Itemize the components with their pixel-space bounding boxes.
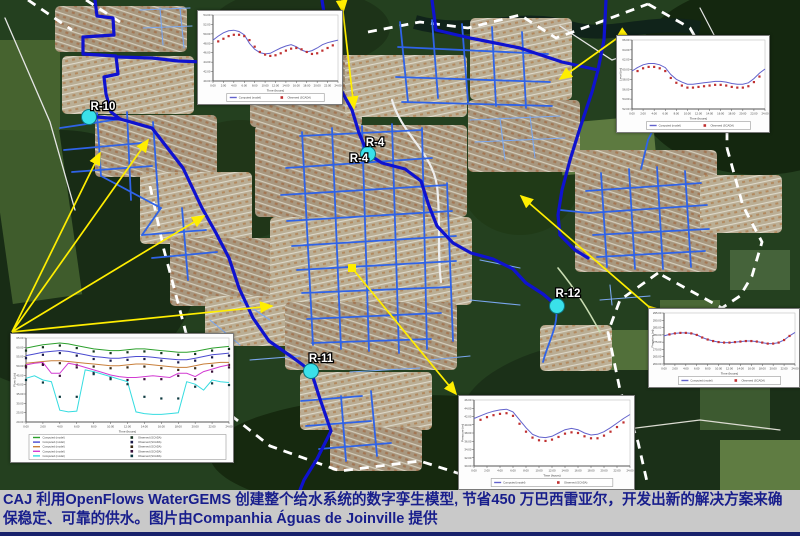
y-tick-label: 54.00 bbox=[622, 97, 629, 101]
series-point bbox=[222, 38, 224, 40]
series-point bbox=[736, 87, 738, 89]
series-point bbox=[259, 51, 261, 53]
legend-label: Observed (SCADA) bbox=[742, 379, 766, 383]
legend-label: Computed (model) bbox=[43, 449, 65, 453]
series-point bbox=[269, 55, 271, 57]
series-point bbox=[505, 412, 507, 414]
series-point bbox=[143, 350, 145, 352]
series-point bbox=[76, 396, 78, 398]
series-point bbox=[177, 361, 179, 363]
series-point bbox=[194, 367, 196, 369]
y-tick-label: 20.00 bbox=[16, 420, 23, 424]
y-tick-label: 45.00 bbox=[16, 373, 23, 377]
series-point bbox=[42, 346, 44, 348]
series-point bbox=[616, 426, 618, 428]
chart-inset-bottom-middle: 46.0044.0042.0040.0038.0036.0034.0032.00… bbox=[459, 396, 634, 489]
y-tick-label: 54.00 bbox=[203, 13, 210, 17]
y-tick-label: 38.00 bbox=[464, 431, 471, 435]
series-point bbox=[295, 47, 297, 49]
figure: R-10R-4R-4R-11R-12 54.0052.0050.0048.004… bbox=[0, 0, 800, 536]
series-point bbox=[707, 338, 709, 340]
series-point bbox=[653, 66, 655, 68]
series-point bbox=[675, 82, 677, 84]
x-tick-label: 2:00 bbox=[640, 111, 646, 115]
series-point bbox=[59, 344, 61, 346]
x-tick-label: 16:00 bbox=[748, 366, 755, 370]
series-point bbox=[42, 364, 44, 366]
node-label-r-4: R-4 bbox=[350, 153, 369, 165]
y-tick-label: 64.00 bbox=[622, 48, 629, 52]
series-point bbox=[570, 431, 572, 433]
y-tick-label: 60.00 bbox=[16, 345, 23, 349]
series-point bbox=[538, 439, 540, 441]
series-point bbox=[636, 70, 638, 72]
series-point bbox=[725, 84, 727, 86]
series-point bbox=[126, 366, 128, 368]
y-tick-label: 260.00 bbox=[653, 362, 662, 366]
series-point bbox=[479, 419, 481, 421]
legend-label: Computed (model) bbox=[43, 436, 65, 440]
y-tick-label: 52.00 bbox=[622, 107, 629, 111]
series-point bbox=[126, 379, 128, 381]
legend-label: Observed (SCADA) bbox=[711, 124, 735, 128]
legend-label: Observed (SCADA) bbox=[288, 96, 312, 100]
x-tick-label: 0:00 bbox=[471, 468, 477, 472]
inset-chart-bottom-middle: 46.0044.0042.0040.0038.0036.0034.0032.00… bbox=[458, 395, 635, 490]
x-tick-label: 6:00 bbox=[663, 111, 669, 115]
series-point bbox=[211, 371, 213, 373]
series-point bbox=[177, 397, 179, 399]
x-tick-label: 10:00 bbox=[107, 424, 114, 428]
inset-chart-top-middle: 54.0052.0050.0048.0046.0044.0042.0040.00… bbox=[197, 10, 343, 105]
y-tick-label: 42.00 bbox=[464, 415, 471, 419]
series-point bbox=[248, 39, 250, 41]
series-point bbox=[143, 358, 145, 360]
x-tick-label: 4:00 bbox=[683, 366, 689, 370]
x-tick-label: 22:00 bbox=[750, 111, 757, 115]
x-tick-label: 24:00 bbox=[627, 468, 634, 472]
series-point bbox=[788, 335, 790, 337]
x-tick-label: 10:00 bbox=[715, 366, 722, 370]
series-point bbox=[783, 339, 785, 341]
x-tick-label: 20:00 bbox=[739, 111, 746, 115]
series-point bbox=[228, 366, 230, 368]
node-label-r-10: R-10 bbox=[91, 101, 116, 113]
series-point bbox=[681, 84, 683, 86]
x-tick-label: 8:00 bbox=[705, 366, 711, 370]
series-point bbox=[217, 40, 219, 42]
series-point bbox=[321, 50, 323, 52]
series-point bbox=[583, 435, 585, 437]
y-axis-title: Level (m) bbox=[619, 68, 623, 81]
series-point bbox=[758, 75, 760, 77]
x-tick-label: 16:00 bbox=[717, 111, 724, 115]
x-tick-label: 6:00 bbox=[242, 83, 248, 87]
x-tick-label: 20:00 bbox=[314, 83, 321, 87]
x-tick-label: 14:00 bbox=[282, 83, 289, 87]
x-tick-label: 24:00 bbox=[792, 366, 799, 370]
node-marker-r-12 bbox=[550, 299, 565, 314]
x-tick-label: 0:00 bbox=[210, 83, 216, 87]
node-label-r-4: R-4 bbox=[366, 137, 385, 149]
callout-anchor-square bbox=[348, 264, 356, 272]
series-point bbox=[42, 381, 44, 383]
series-point bbox=[274, 54, 276, 56]
series-point bbox=[143, 378, 145, 380]
x-tick-label: 8:00 bbox=[91, 424, 97, 428]
x-tick-label: 12:00 bbox=[695, 111, 702, 115]
series-point bbox=[59, 375, 61, 377]
series-point bbox=[143, 396, 145, 398]
x-tick-label: 18:00 bbox=[759, 366, 766, 370]
legend-label: Computed (model) bbox=[239, 96, 261, 100]
caption-text: CAJ 利用OpenFlows WaterGEMS 创建整个给水系统的数字孪生模… bbox=[0, 490, 800, 529]
chart-inset-top-middle: 54.0052.0050.0048.0046.0044.0042.0040.00… bbox=[198, 11, 342, 104]
series-point bbox=[42, 354, 44, 356]
x-tick-label: 2:00 bbox=[672, 366, 678, 370]
y-tick-label: 34.00 bbox=[464, 448, 471, 452]
y-tick-label: 44.00 bbox=[464, 406, 471, 410]
series-point bbox=[525, 431, 527, 433]
series-point bbox=[160, 367, 162, 369]
x-tick-label: 20:00 bbox=[601, 468, 608, 472]
y-tick-label: 50.00 bbox=[16, 364, 23, 368]
series-point bbox=[177, 375, 179, 377]
series-point bbox=[742, 87, 744, 89]
series-point bbox=[492, 414, 494, 416]
x-tick-label: 22:00 bbox=[614, 468, 621, 472]
series-point bbox=[228, 355, 230, 357]
plot-area bbox=[474, 400, 630, 466]
x-tick-label: 14:00 bbox=[706, 111, 713, 115]
inset-chart-right-middle: 295.00290.00285.00280.00275.00270.00265.… bbox=[648, 308, 800, 388]
node-label-r-11: R-11 bbox=[309, 353, 334, 365]
x-tick-label: 16:00 bbox=[293, 83, 300, 87]
x-tick-label: 14:00 bbox=[737, 366, 744, 370]
series-point bbox=[703, 85, 705, 87]
y-tick-label: 50.00 bbox=[203, 32, 210, 36]
series-point bbox=[701, 336, 703, 338]
series-point bbox=[238, 34, 240, 36]
inset-chart-top-right: 66.0064.0062.0060.0058.0056.0054.0052.00… bbox=[616, 35, 770, 133]
series-point bbox=[160, 360, 162, 362]
legend-label: Computed (model) bbox=[690, 379, 712, 383]
y-tick-label: 32.00 bbox=[464, 456, 471, 460]
x-tick-label: 4:00 bbox=[231, 83, 237, 87]
y-tick-label: 44.00 bbox=[203, 60, 210, 64]
series-point bbox=[177, 369, 179, 371]
x-tick-label: 14:00 bbox=[141, 424, 148, 428]
series-point bbox=[778, 341, 780, 343]
series-point bbox=[697, 86, 699, 88]
y-tick-label: 265.00 bbox=[653, 355, 662, 359]
inset-chart-bottom-left: 65.0060.0055.0050.0045.0040.0035.0030.00… bbox=[10, 333, 234, 463]
series-point bbox=[720, 84, 722, 86]
y-tick-label: 60.00 bbox=[622, 68, 629, 72]
series-point bbox=[664, 70, 666, 72]
y-tick-label: 65.00 bbox=[16, 336, 23, 340]
series-point bbox=[512, 415, 514, 417]
x-tick-label: 24:00 bbox=[762, 111, 769, 115]
series-point bbox=[194, 386, 196, 388]
x-tick-label: 20:00 bbox=[770, 366, 777, 370]
x-tick-label: 2:00 bbox=[484, 468, 490, 472]
x-tick-label: 18:00 bbox=[303, 83, 310, 87]
x-tick-label: 0:00 bbox=[23, 424, 29, 428]
x-tick-label: 12:00 bbox=[124, 424, 131, 428]
series-point bbox=[25, 357, 27, 359]
series-point bbox=[177, 354, 179, 356]
x-tick-label: 8:00 bbox=[252, 83, 258, 87]
series-point bbox=[160, 378, 162, 380]
series-point bbox=[59, 362, 61, 364]
series-point bbox=[160, 352, 162, 354]
y-tick-label: 40.00 bbox=[464, 423, 471, 427]
series-point bbox=[557, 436, 559, 438]
x-tick-label: 24:00 bbox=[335, 83, 342, 87]
x-tick-label: 6:00 bbox=[694, 366, 700, 370]
series-point bbox=[696, 334, 698, 336]
series-point bbox=[76, 366, 78, 368]
series-point bbox=[76, 355, 78, 357]
x-tick-label: 2:00 bbox=[221, 83, 227, 87]
x-tick-label: 10:00 bbox=[684, 111, 691, 115]
y-tick-label: 30.00 bbox=[16, 401, 23, 405]
series-point bbox=[143, 365, 145, 367]
x-tick-label: 4:00 bbox=[57, 424, 63, 428]
y-tick-label: 35.00 bbox=[16, 392, 23, 396]
x-axis-title: Time (hours) bbox=[690, 116, 707, 120]
series-point bbox=[109, 352, 111, 354]
series-point bbox=[211, 350, 213, 352]
series-point bbox=[622, 421, 624, 423]
series-point bbox=[326, 47, 328, 49]
y-tick-label: 52.00 bbox=[203, 22, 210, 26]
y-tick-label: 66.00 bbox=[622, 38, 629, 42]
x-tick-label: 24:00 bbox=[226, 424, 233, 428]
x-axis-title: Time (hours) bbox=[267, 88, 284, 92]
series-point bbox=[596, 437, 598, 439]
chart-inset-bottom-left: 65.0060.0055.0050.0045.0040.0035.0030.00… bbox=[11, 334, 233, 462]
x-axis-title: Time (hours) bbox=[543, 473, 560, 477]
series-point bbox=[93, 358, 95, 360]
series-point bbox=[59, 352, 61, 354]
series-point bbox=[648, 66, 650, 68]
x-tick-label: 8:00 bbox=[523, 468, 529, 472]
y-tick-label: 48.00 bbox=[203, 41, 210, 45]
series-point bbox=[332, 44, 334, 46]
y-axis-title: Pressure (m) bbox=[651, 330, 655, 348]
series-point bbox=[93, 350, 95, 352]
series-point bbox=[76, 347, 78, 349]
legend-label: Observed (SCADA) bbox=[138, 440, 162, 444]
plot-area bbox=[213, 15, 338, 81]
x-tick-label: 12:00 bbox=[272, 83, 279, 87]
series-point bbox=[109, 367, 111, 369]
legend-label: Observed (SCADA) bbox=[138, 449, 162, 453]
series-point bbox=[311, 53, 313, 55]
y-tick-label: 295.00 bbox=[653, 311, 662, 315]
x-tick-label: 20:00 bbox=[192, 424, 199, 428]
series-point bbox=[712, 340, 714, 342]
y-tick-label: 56.00 bbox=[622, 87, 629, 91]
x-tick-label: 2:00 bbox=[40, 424, 46, 428]
series-point bbox=[211, 356, 213, 358]
series-point bbox=[486, 416, 488, 418]
x-tick-label: 16:00 bbox=[158, 424, 165, 428]
series-point bbox=[577, 432, 579, 434]
series-point bbox=[126, 383, 128, 385]
series-point bbox=[731, 86, 733, 88]
y-tick-label: 30.00 bbox=[464, 464, 471, 468]
map-area: R-10R-4R-4R-11R-12 54.0052.0050.0048.004… bbox=[0, 0, 800, 490]
series-point bbox=[25, 379, 27, 381]
y-tick-label: 36.00 bbox=[464, 439, 471, 443]
series-point bbox=[753, 81, 755, 83]
series-point bbox=[93, 373, 95, 375]
series-point bbox=[518, 423, 520, 425]
x-tick-label: 16:00 bbox=[575, 468, 582, 472]
series-point bbox=[280, 52, 282, 54]
series-point bbox=[590, 437, 592, 439]
x-tick-label: 18:00 bbox=[175, 424, 182, 428]
series-point bbox=[668, 333, 670, 335]
series-point bbox=[745, 340, 747, 342]
series-point bbox=[194, 360, 196, 362]
series-point bbox=[243, 35, 245, 37]
y-tick-label: 46.00 bbox=[464, 398, 471, 402]
caption-bar: CAJ 利用OpenFlows WaterGEMS 创建整个给水系统的数字孪生模… bbox=[0, 490, 800, 536]
series-point bbox=[761, 341, 763, 343]
series-point bbox=[564, 433, 566, 435]
x-axis-title: Time (hours) bbox=[721, 371, 738, 375]
series-point bbox=[659, 67, 661, 69]
series-point bbox=[228, 35, 230, 37]
series-point bbox=[254, 46, 256, 48]
y-tick-label: 46.00 bbox=[203, 51, 210, 55]
series-point bbox=[211, 365, 213, 367]
series-point bbox=[728, 341, 730, 343]
plot-area bbox=[632, 40, 765, 109]
x-tick-label: 22:00 bbox=[324, 83, 331, 87]
legend-label: Observed (SCADA) bbox=[138, 436, 162, 440]
x-axis-title: Time (hours) bbox=[119, 429, 136, 433]
y-tick-label: 25.00 bbox=[16, 411, 23, 415]
chart-inset-right-middle: 295.00290.00285.00280.00275.00270.00265.… bbox=[649, 309, 799, 387]
legend-label: Computed (model) bbox=[43, 445, 65, 449]
series-point bbox=[59, 396, 61, 398]
series-point bbox=[25, 350, 27, 352]
series-point bbox=[285, 50, 287, 52]
series-point bbox=[300, 48, 302, 50]
series-point bbox=[194, 353, 196, 355]
series-point bbox=[685, 332, 687, 334]
series-point bbox=[228, 348, 230, 350]
series-point bbox=[306, 51, 308, 53]
x-tick-label: 8:00 bbox=[674, 111, 680, 115]
series-point bbox=[126, 359, 128, 361]
series-point bbox=[739, 340, 741, 342]
series-point bbox=[717, 341, 719, 343]
legend-label: Computed (model) bbox=[43, 454, 65, 458]
series-point bbox=[316, 52, 318, 54]
series-point bbox=[772, 343, 774, 345]
legend-label: Observed (SCADA) bbox=[138, 445, 162, 449]
x-tick-label: 12:00 bbox=[549, 468, 556, 472]
x-tick-label: 4:00 bbox=[497, 468, 503, 472]
series-point bbox=[723, 341, 725, 343]
series-point bbox=[747, 85, 749, 87]
series-point bbox=[692, 87, 694, 89]
x-tick-label: 6:00 bbox=[74, 424, 80, 428]
y-tick-label: 55.00 bbox=[16, 355, 23, 359]
series-point bbox=[714, 84, 716, 86]
series-point bbox=[686, 87, 688, 89]
y-tick-label: 285.00 bbox=[653, 326, 662, 330]
x-tick-label: 10:00 bbox=[262, 83, 269, 87]
x-tick-label: 18:00 bbox=[728, 111, 735, 115]
series-point bbox=[544, 440, 546, 442]
y-tick-label: 62.00 bbox=[622, 58, 629, 62]
series-point bbox=[233, 34, 235, 36]
series-point bbox=[228, 384, 230, 386]
legend-label: Computed (model) bbox=[659, 124, 681, 128]
x-tick-label: 14:00 bbox=[562, 468, 569, 472]
series-point bbox=[756, 340, 758, 342]
series-point bbox=[290, 48, 292, 50]
series-point bbox=[25, 366, 27, 368]
series-point bbox=[109, 360, 111, 362]
series-point bbox=[264, 54, 266, 56]
x-tick-label: 22:00 bbox=[209, 424, 216, 428]
y-tick-label: 40.00 bbox=[203, 79, 210, 83]
x-tick-label: 12:00 bbox=[726, 366, 733, 370]
y-tick-label: 58.00 bbox=[622, 77, 629, 81]
series-point bbox=[674, 332, 676, 334]
x-tick-label: 10:00 bbox=[536, 468, 543, 472]
series-point bbox=[767, 343, 769, 345]
series-point bbox=[642, 67, 644, 69]
series-point bbox=[531, 437, 533, 439]
series-point bbox=[93, 365, 95, 367]
series-point bbox=[211, 382, 213, 384]
series-point bbox=[499, 413, 501, 415]
node-label-r-12: R-12 bbox=[556, 288, 581, 300]
series-point bbox=[670, 77, 672, 79]
y-axis-title: Pressure (m) bbox=[461, 424, 465, 442]
series-point bbox=[551, 439, 553, 441]
series-point bbox=[679, 332, 681, 334]
series-point bbox=[126, 351, 128, 353]
plot-area bbox=[664, 313, 795, 364]
series-point bbox=[603, 435, 605, 437]
legend-label: Computed (model) bbox=[503, 481, 525, 485]
series-point bbox=[734, 341, 736, 343]
y-tick-label: 42.00 bbox=[203, 70, 210, 74]
legend-label: Observed (SCADA) bbox=[138, 454, 162, 458]
x-tick-label: 22:00 bbox=[781, 366, 788, 370]
chart-inset-top-right: 66.0064.0062.0060.0058.0056.0054.0052.00… bbox=[617, 36, 769, 132]
x-tick-label: 0:00 bbox=[629, 111, 635, 115]
legend-label: Computed (model) bbox=[43, 440, 65, 444]
legend-label: Observed (SCADA) bbox=[564, 481, 588, 485]
series-point bbox=[160, 397, 162, 399]
series-point bbox=[708, 84, 710, 86]
series-point bbox=[194, 378, 196, 380]
node-marker-r-11 bbox=[304, 364, 319, 379]
series-point bbox=[690, 332, 692, 334]
y-axis-title: Flow (L/s) bbox=[13, 373, 17, 387]
